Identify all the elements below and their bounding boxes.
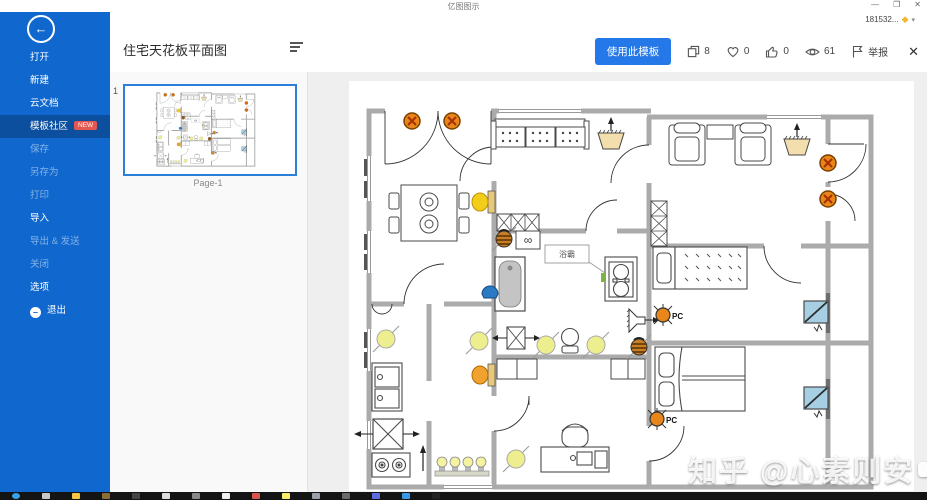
taskbar-app-icon[interactable]: [282, 493, 290, 499]
vip-gem-icon: ◆: [902, 14, 909, 25]
copies-stat[interactable]: 8: [687, 45, 710, 58]
minimize-button[interactable]: —: [871, 0, 879, 9]
taskbar-app-icon[interactable]: [342, 493, 350, 499]
taskbar-app-icon[interactable]: [42, 493, 50, 499]
pages-panel: 1 Page-1: [110, 72, 308, 492]
sidebar-item-cloud-docs[interactable]: 云文档: [0, 92, 110, 115]
drawing-canvas[interactable]: [308, 72, 927, 492]
report-label: 举报: [868, 44, 888, 59]
sidebar-item-close[interactable]: 关闭: [0, 253, 110, 276]
page-index: 1: [113, 86, 118, 96]
back-arrow-icon: ←: [35, 21, 48, 36]
chevron-down-icon: ▾: [911, 16, 915, 24]
new-badge: NEW: [74, 121, 97, 130]
sidebar-item-print[interactable]: 打印: [0, 184, 110, 207]
watermark-icon: [918, 462, 927, 477]
eye-icon: [805, 46, 820, 58]
restore-button[interactable]: ❐: [893, 0, 900, 9]
sidebar: ← 打开 新建 云文档 模板社区NEW 保存 另存为 打印 导入 导出 & 发送…: [0, 12, 110, 492]
canvas-sheet: [343, 80, 923, 492]
titlebar: 亿图图示 — ❐ ✕: [0, 0, 927, 12]
taskbar-app-icon[interactable]: [132, 493, 140, 499]
taskbar-app-icon[interactable]: [252, 493, 260, 499]
copies-count: 8: [704, 46, 710, 57]
taskbar-app-icon[interactable]: [192, 493, 200, 499]
copy-icon: [687, 45, 700, 58]
taskbar-app-icon[interactable]: [432, 493, 440, 499]
account-menu[interactable]: 181532... ◆ ▾: [865, 14, 915, 25]
page-title: 住宅天花板平面图: [123, 40, 227, 59]
taskbar-app-icon[interactable]: [312, 493, 320, 499]
use-template-button[interactable]: 使用此模板: [595, 38, 672, 65]
likes-count: 0: [783, 46, 789, 57]
window-close-button[interactable]: ✕: [914, 0, 921, 9]
taskbar-app-icon[interactable]: [12, 493, 20, 499]
flag-icon: [851, 45, 864, 58]
sidebar-item-open[interactable]: 打开: [0, 46, 110, 69]
watermark: 知乎 @心素则安: [688, 448, 927, 490]
exit-minus-icon: –: [30, 307, 41, 318]
likes-stat[interactable]: 0: [765, 45, 789, 58]
page-list-icon[interactable]: [290, 42, 306, 54]
taskbar-app-icon[interactable]: [222, 493, 230, 499]
favorites-count: 0: [744, 46, 750, 57]
taskbar-app-icon[interactable]: [102, 493, 110, 499]
sidebar-item-exit[interactable]: –退出: [0, 299, 110, 322]
favorites-stat[interactable]: 0: [726, 45, 750, 58]
app-title: 亿图图示: [0, 1, 927, 12]
sidebar-item-save[interactable]: 保存: [0, 138, 110, 161]
app-window: 浴霸 ∞: [0, 0, 927, 500]
page-label: Page-1: [123, 178, 293, 188]
sidebar-item-save-as[interactable]: 另存为: [0, 161, 110, 184]
watermark-text: 知乎 @心素则安: [688, 456, 914, 488]
views-stat: 61: [805, 46, 835, 58]
sidebar-item-template-community[interactable]: 模板社区NEW: [0, 115, 110, 138]
account-name: 181532...: [865, 15, 898, 24]
taskbar-app-icon[interactable]: [162, 493, 170, 499]
sidebar-item-new[interactable]: 新建: [0, 69, 110, 92]
close-template-button[interactable]: ✕: [908, 44, 919, 60]
taskbar-app-icon[interactable]: [372, 493, 380, 499]
thumbs-up-icon: [765, 45, 779, 58]
sidebar-item-options[interactable]: 选项: [0, 276, 110, 299]
views-count: 61: [824, 46, 835, 57]
sidebar-item-import[interactable]: 导入: [0, 207, 110, 230]
header: 181532... ◆ ▾ 住宅天花板平面图 使用此模板 8 0 0 61: [110, 12, 927, 72]
taskbar-app-icon[interactable]: [402, 493, 410, 499]
sidebar-item-export-send[interactable]: 导出 & 发送: [0, 230, 110, 253]
report-button[interactable]: 举报: [851, 44, 888, 59]
back-button[interactable]: ←: [27, 15, 55, 43]
page-thumbnail[interactable]: [123, 84, 297, 176]
heart-icon: [726, 45, 740, 58]
taskbar[interactable]: [0, 492, 927, 500]
thumbnail-plan: [125, 86, 291, 170]
taskbar-app-icon[interactable]: [72, 493, 80, 499]
